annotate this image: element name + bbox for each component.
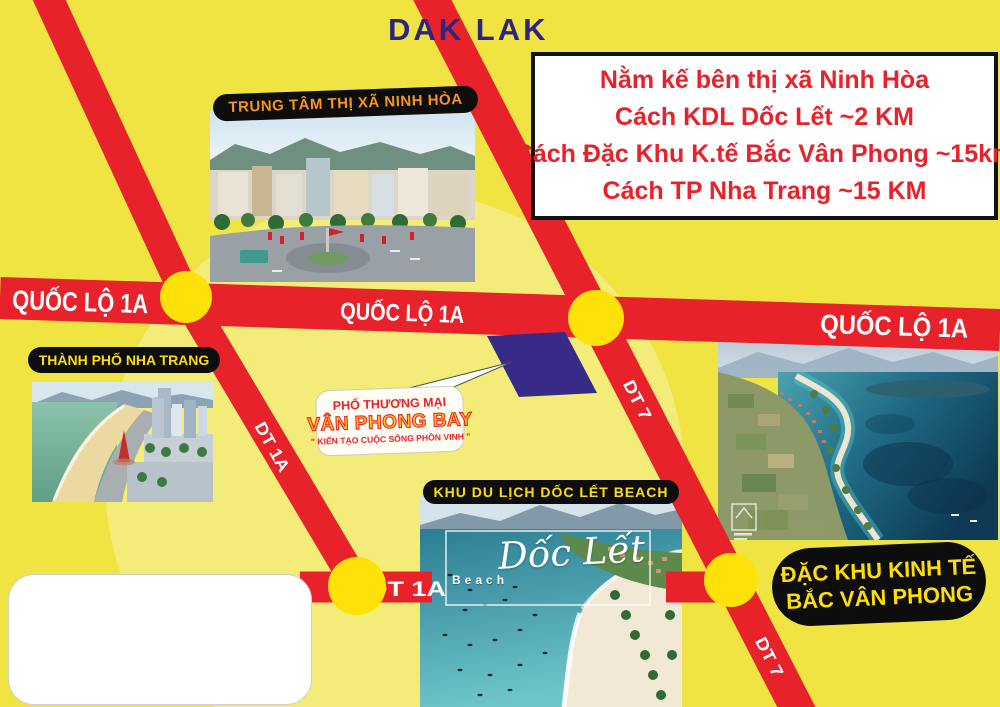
nha-trang-city-photo xyxy=(32,382,213,502)
road-label-dt7-lower: DT 7 xyxy=(751,634,787,680)
road-label-ql1a-left: QUỐC LỘ 1A xyxy=(12,283,149,319)
info-line-1: Nằm kế bên thị xã Ninh Hòa xyxy=(600,62,929,99)
distance-info-box: Nằm kế bên thị xã Ninh Hòa Cách KDL Dốc … xyxy=(531,52,998,220)
doc-let-script-title: Dốc Lết xyxy=(497,527,646,578)
far-peninsula xyxy=(866,380,990,398)
info-line-3: Cách Đặc Khu K.tế Bắc Vân Phong ~15km xyxy=(515,136,1000,173)
van-phong-photo-art xyxy=(718,334,998,540)
bus xyxy=(240,250,268,263)
van-phong-bay-aerial-photo xyxy=(718,334,998,540)
info-line-2: Cách KDL Dốc Lết ~2 KM xyxy=(615,99,914,136)
project-callout-bubble: PHỐ THƯƠNG MẠI VÂN PHONG BAY " KIẾN TẠO … xyxy=(315,385,465,456)
nha-trang-photo-art xyxy=(32,382,213,502)
junction-dt1a-dt7 xyxy=(704,553,758,607)
empty-note-box xyxy=(8,574,312,705)
info-line-4: Cách TP Nha Trang ~15 KM xyxy=(603,173,927,210)
ninh-hoa-town-photo xyxy=(210,110,475,282)
label-doc-let-resort: KHU DU LỊCH DỐC LẾT BEACH xyxy=(423,480,679,504)
ninh-hoa-photo-art xyxy=(210,110,475,282)
road-dt1a-upper xyxy=(40,0,186,297)
economic-zone-badge: ĐẶC KHU KINH TẾ BẮC VÂN PHONG xyxy=(770,540,987,627)
map-poster: Beach Dốc Lết xyxy=(0,0,1000,707)
label-nha-trang-city: THÀNH PHỐ NHA TRANG xyxy=(28,347,220,373)
doc-let-beach-photo: Beach Dốc Lết xyxy=(420,495,682,707)
region-label-dak-lak: DAK LAK xyxy=(388,12,549,48)
